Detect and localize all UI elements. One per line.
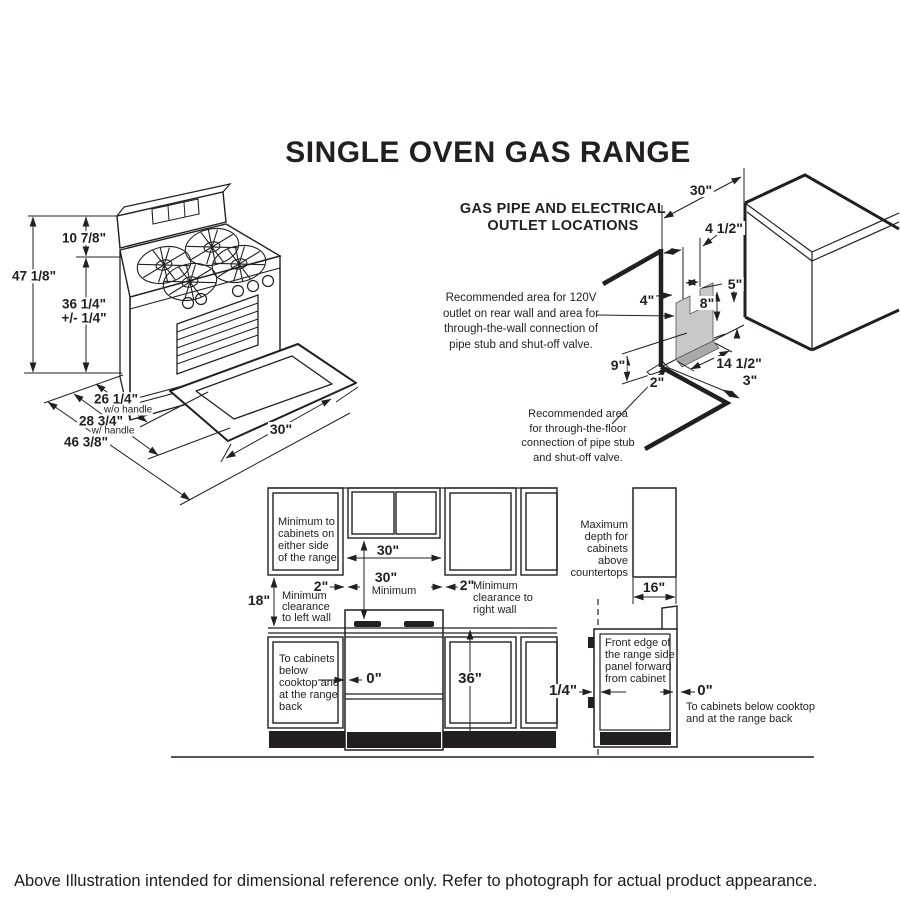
dim-notch-width: 4 1/2" <box>703 221 745 235</box>
dim-zero-clearance: 0" <box>364 672 383 686</box>
note-max-depth: Maximum depth for cabinets above counter… <box>556 519 628 579</box>
note-right-wall: Minimum clearance to right wall <box>473 580 533 616</box>
dim-wall-width: 30" <box>688 183 714 197</box>
note-below-cabinets: To cabinets below cooktop and at the ran… <box>279 653 339 713</box>
dim-cabinet-depth-16: 16" <box>641 580 667 594</box>
dim-floor-offset: 2" <box>648 375 666 389</box>
dim-floor-depth: 3" <box>741 373 759 387</box>
note-floor-connection: Recommended area for through-the-floor c… <box>513 407 643 465</box>
disclaimer-caption: Above Illustration intended for dimensio… <box>14 872 817 891</box>
note-side-cabinets: Minimum to cabinets on either side of th… <box>278 516 340 564</box>
dim-overall-height: 47 1/8" <box>10 269 58 283</box>
dim-zero-back: 0" <box>695 684 714 698</box>
note-wall-outlet: Recommended area for 120V outlet on rear… <box>436 291 606 353</box>
page-title: SINGLE OVEN GAS RANGE <box>285 136 691 170</box>
dim-area-width: 14 1/2" <box>714 356 764 370</box>
dim-min-vertical: 30" <box>373 570 399 584</box>
dim-gap-right: 5" <box>726 277 744 291</box>
dim-counter-36: 36" <box>456 672 484 686</box>
dim-counter-height: 18" <box>246 593 272 607</box>
note-front-edge: Front edge of the range side panel forwa… <box>605 637 675 685</box>
dim-backsplash-height: 10 7/8" <box>60 231 108 245</box>
dim-cooktop-height: 36 1/4" +/- 1/4" <box>59 298 108 325</box>
dim-area-height: 9" <box>609 358 627 372</box>
dim-notch-height: 8" <box>698 296 716 310</box>
gas-diagram-title: GAS PIPE AND ELECTRICAL OUTLET LOCATIONS <box>460 201 666 235</box>
note-left-wall: Minimum clearance to left wall <box>282 591 331 624</box>
dim-quarter-inch: 1/4" <box>547 684 579 698</box>
dim-total-depth: 46 3/8" <box>62 435 110 449</box>
diagram-line-art <box>0 0 900 900</box>
dim-opening-width: 30" <box>375 543 401 557</box>
control-knobs <box>183 276 274 309</box>
label-minimum: Minimum <box>372 585 417 597</box>
dim-range-width: 30" <box>268 422 294 436</box>
note-below-cabinets-side: To cabinets below cooktop and at the ran… <box>686 701 815 725</box>
dim-offset-left: 4" <box>638 293 656 307</box>
installation-diagram-page: SINGLE OVEN GAS RANGE 47 1/8" 10 7/8" 36… <box>0 0 900 900</box>
